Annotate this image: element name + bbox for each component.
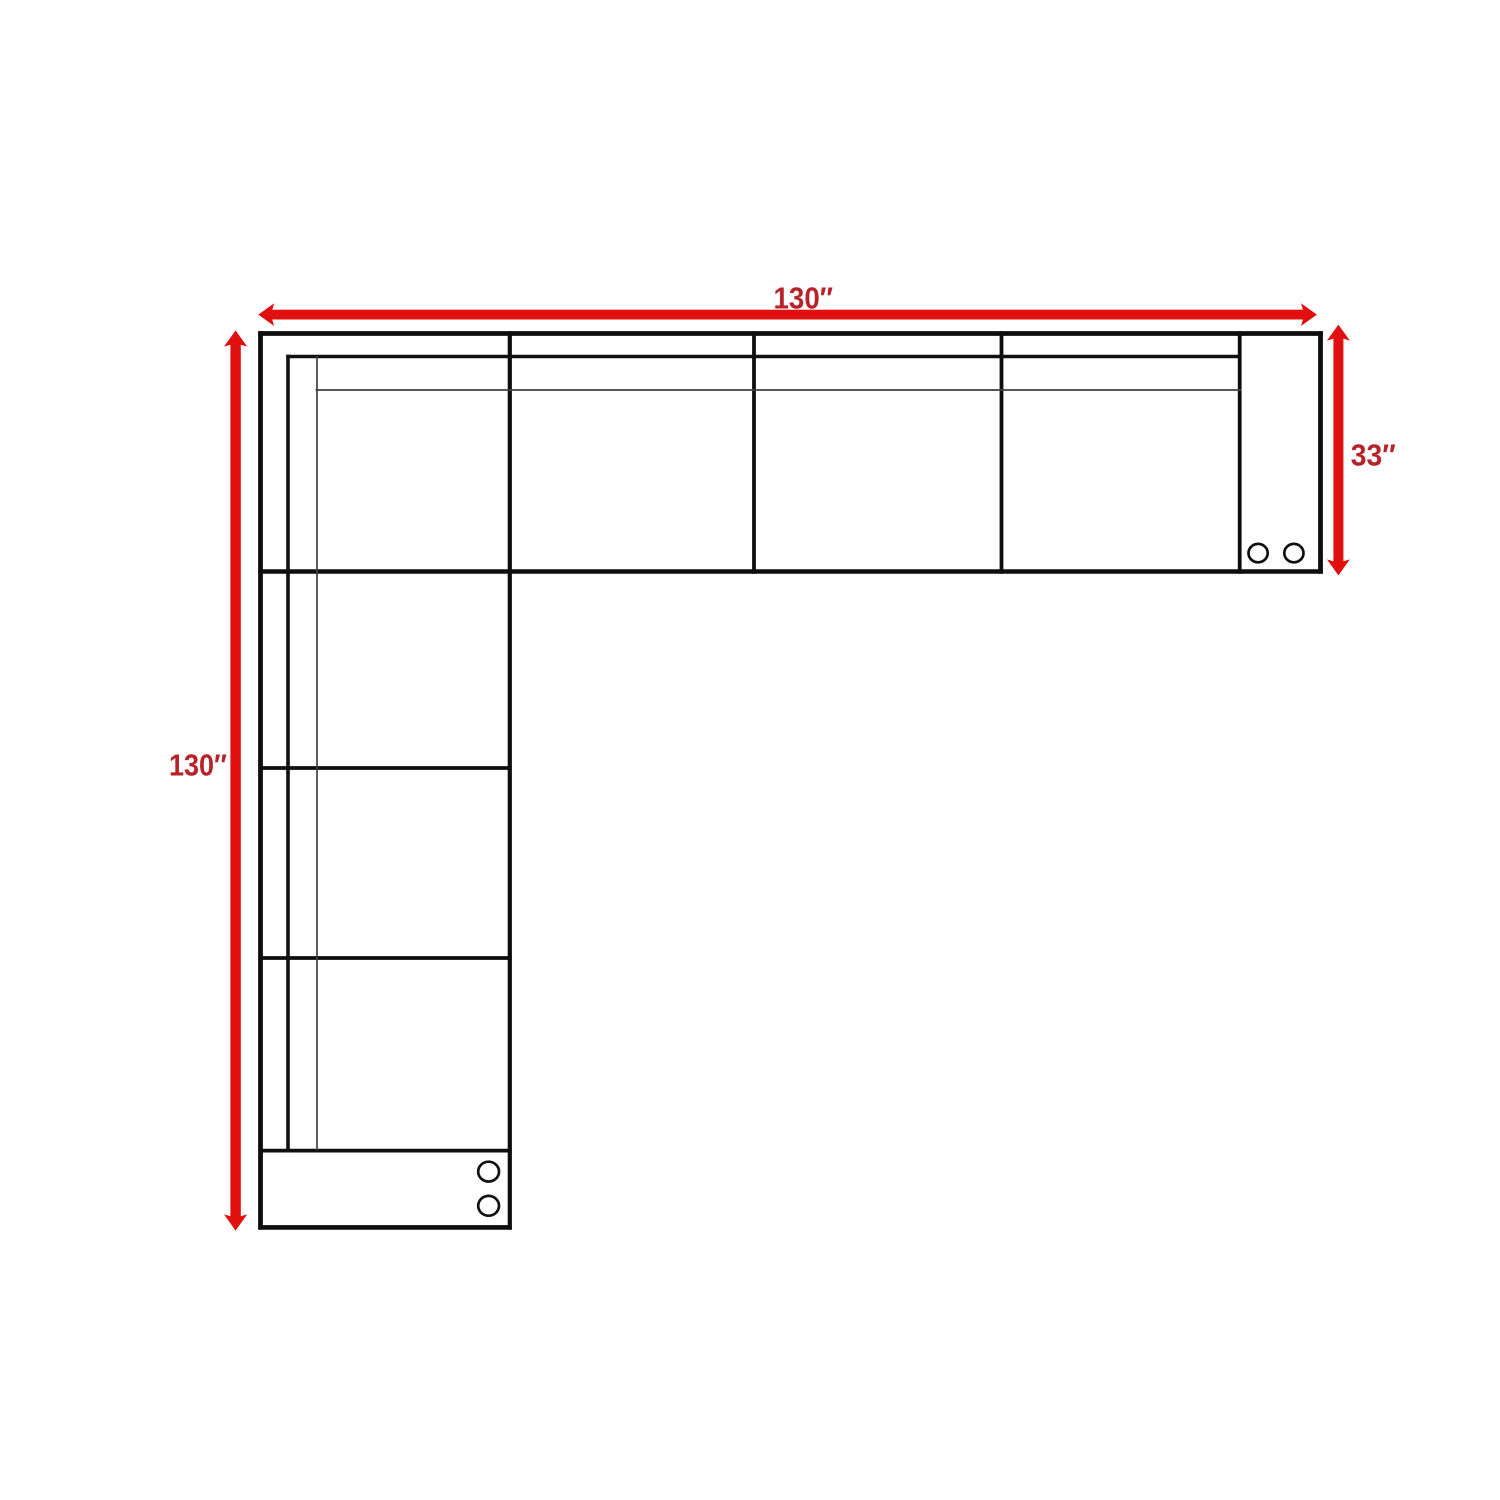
svg-text:33″: 33″ bbox=[1351, 437, 1396, 472]
svg-text:130″: 130″ bbox=[169, 748, 227, 783]
svg-text:130″: 130″ bbox=[774, 280, 834, 315]
